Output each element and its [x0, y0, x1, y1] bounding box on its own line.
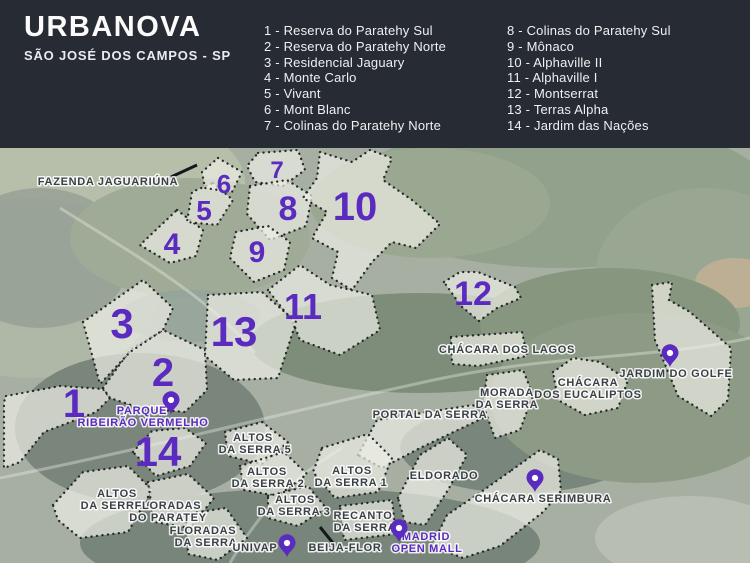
- place-label: ALTOS: [247, 466, 287, 478]
- area-number-4: 4: [164, 228, 181, 261]
- satellite-map: 1234567891011121314 FAZENDA JAGUARIÚNACH…: [0, 148, 750, 563]
- area-number-7: 7: [270, 157, 283, 184]
- legend-item: 14 - Jardim das Nações: [507, 118, 671, 134]
- place-label: DA SERRA: [175, 537, 238, 549]
- legend-item: 6 - Mont Blanc: [264, 102, 446, 118]
- area-number-8: 8: [279, 190, 298, 228]
- place-label: DO PARATEY: [129, 512, 207, 524]
- place-label: CHÁCARA: [558, 376, 619, 389]
- area-number-14: 14: [135, 428, 182, 475]
- place-label: BEIJA-FLOR: [309, 542, 382, 554]
- place-label: JARDIM DO GOLFE: [619, 368, 732, 380]
- legend-item: 2 - Reserva do Paratehy Norte: [264, 39, 446, 55]
- place-label: ALTOS: [97, 488, 137, 500]
- place-label: DA SERRA: [334, 522, 397, 534]
- legend-item: 13 - Terras Alpha: [507, 102, 671, 118]
- place-label: CHÁCARA DOS LAGOS: [439, 343, 575, 356]
- legend-item: 11 - Alphaville I: [507, 70, 671, 86]
- place-label: UNIVAP: [233, 542, 278, 554]
- place-label: PORTAL DA SERRA: [373, 409, 488, 421]
- area-number-9: 9: [249, 236, 266, 269]
- legend-col-1: 1 - Reserva do Paratehy Sul2 - Reserva d…: [264, 23, 446, 134]
- place-label: RIBEIRÃO VERMELHO: [77, 416, 208, 429]
- legend-item: 5 - Vivant: [264, 86, 446, 102]
- place-label: ALTOS: [275, 494, 315, 506]
- legend-item: 8 - Colinas do Paratehy Sul: [507, 23, 671, 39]
- area-number-5: 5: [196, 195, 212, 226]
- place-label: DA SERRA 2: [232, 478, 305, 490]
- place-label: ALTOS: [332, 465, 372, 477]
- page-title: URBANOVA: [24, 12, 231, 44]
- title-block: URBANOVA SÃO JOSÉ DOS CAMPOS - SP: [24, 12, 231, 63]
- place-label: MADRID: [402, 531, 450, 543]
- place-label: ALTOS: [233, 432, 273, 444]
- place-label: DA SERRA 1: [315, 477, 388, 489]
- place-label: RECANTO: [333, 510, 392, 522]
- area-number-10: 10: [333, 185, 378, 229]
- area-number-13: 13: [211, 308, 258, 355]
- place-label: CHÁCARA SERIMBURA: [475, 492, 612, 505]
- legend-item: 9 - Mônaco: [507, 39, 671, 55]
- legend-col-2: 8 - Colinas do Paratehy Sul9 - Mônaco10 …: [507, 23, 671, 134]
- place-label: OPEN MALL: [391, 543, 462, 555]
- legend-item: 4 - Monte Carlo: [264, 70, 446, 86]
- place-label: DA SERRA 5: [219, 444, 292, 456]
- map-canvas: 1234567891011121314 FAZENDA JAGUARIÚNACH…: [0, 148, 750, 563]
- place-label: ELDORADO: [410, 470, 479, 482]
- page-subtitle: SÃO JOSÉ DOS CAMPOS - SP: [24, 48, 231, 63]
- area-number-2: 2: [152, 351, 174, 395]
- place-label: DOS EUCALIPTOS: [534, 389, 641, 401]
- urbanova-map-infographic: URBANOVA SÃO JOSÉ DOS CAMPOS - SP 1 - Re…: [0, 0, 750, 563]
- header: URBANOVA SÃO JOSÉ DOS CAMPOS - SP 1 - Re…: [0, 0, 750, 148]
- place-label: FLORADAS: [170, 525, 237, 537]
- area-number-6: 6: [217, 169, 231, 199]
- place-label: PARQUE: [117, 405, 167, 417]
- place-label: FLORADAS: [135, 500, 202, 512]
- legend-item: 12 - Montserrat: [507, 86, 671, 102]
- place-label: MORADA: [480, 387, 534, 399]
- area-number-12: 12: [454, 275, 492, 313]
- legend-item: 10 - Alphaville II: [507, 55, 671, 71]
- legend-item: 3 - Residencial Jaguary: [264, 55, 446, 71]
- place-label: DA SERRA 3: [258, 506, 331, 518]
- area-number-11: 11: [284, 286, 322, 327]
- legend-item: 1 - Reserva do Paratehy Sul: [264, 23, 446, 39]
- area-number-3: 3: [110, 300, 133, 347]
- place-label: FAZENDA JAGUARIÚNA: [38, 175, 179, 188]
- legend-item: 7 - Colinas do Paratehy Norte: [264, 118, 446, 134]
